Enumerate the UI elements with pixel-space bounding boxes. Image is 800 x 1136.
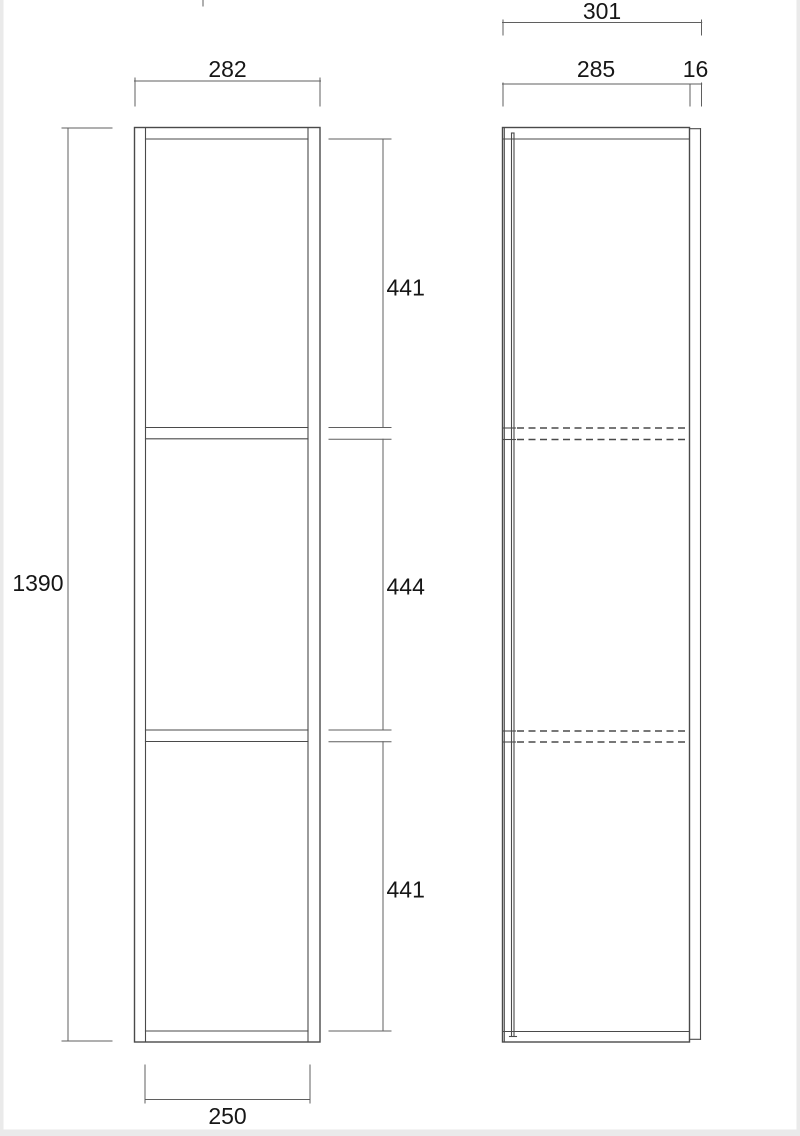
dimension-label: 282 [208, 56, 246, 82]
dimension-label: 444 [387, 574, 426, 600]
dimension-label: 301 [583, 0, 621, 24]
dimension-side-total-depth: 301 [503, 0, 702, 35]
dimension-label: 16 [683, 56, 709, 82]
dimension-label: 1390 [12, 570, 63, 596]
dimension-label: 250 [208, 1103, 246, 1129]
dimension-label: 441 [387, 877, 425, 903]
front-view [135, 0, 321, 1042]
dimension-front-inner-width: 250 [145, 1065, 310, 1129]
dimension-section-chain: 441 444 441 [329, 139, 425, 1031]
front-outer-outline [135, 128, 321, 1043]
dimension-total-height: 1390 [12, 128, 112, 1041]
technical-drawing-canvas: 282 1390 441 444 441 250 301 [0, 0, 800, 1136]
side-view [503, 128, 701, 1043]
page-edge-bottom [0, 1130, 800, 1136]
dimension-label: 285 [577, 56, 615, 82]
page-edge-left [0, 0, 4, 1136]
drawing-page: 282 1390 441 444 441 250 301 [0, 0, 800, 1136]
page-edge-right [797, 0, 800, 1136]
dimension-front-outer-width: 282 [135, 56, 321, 106]
side-outer-outline [503, 128, 690, 1043]
dimension-label: 441 [387, 275, 425, 301]
dimension-side-body-depth: 285 16 [503, 56, 709, 106]
